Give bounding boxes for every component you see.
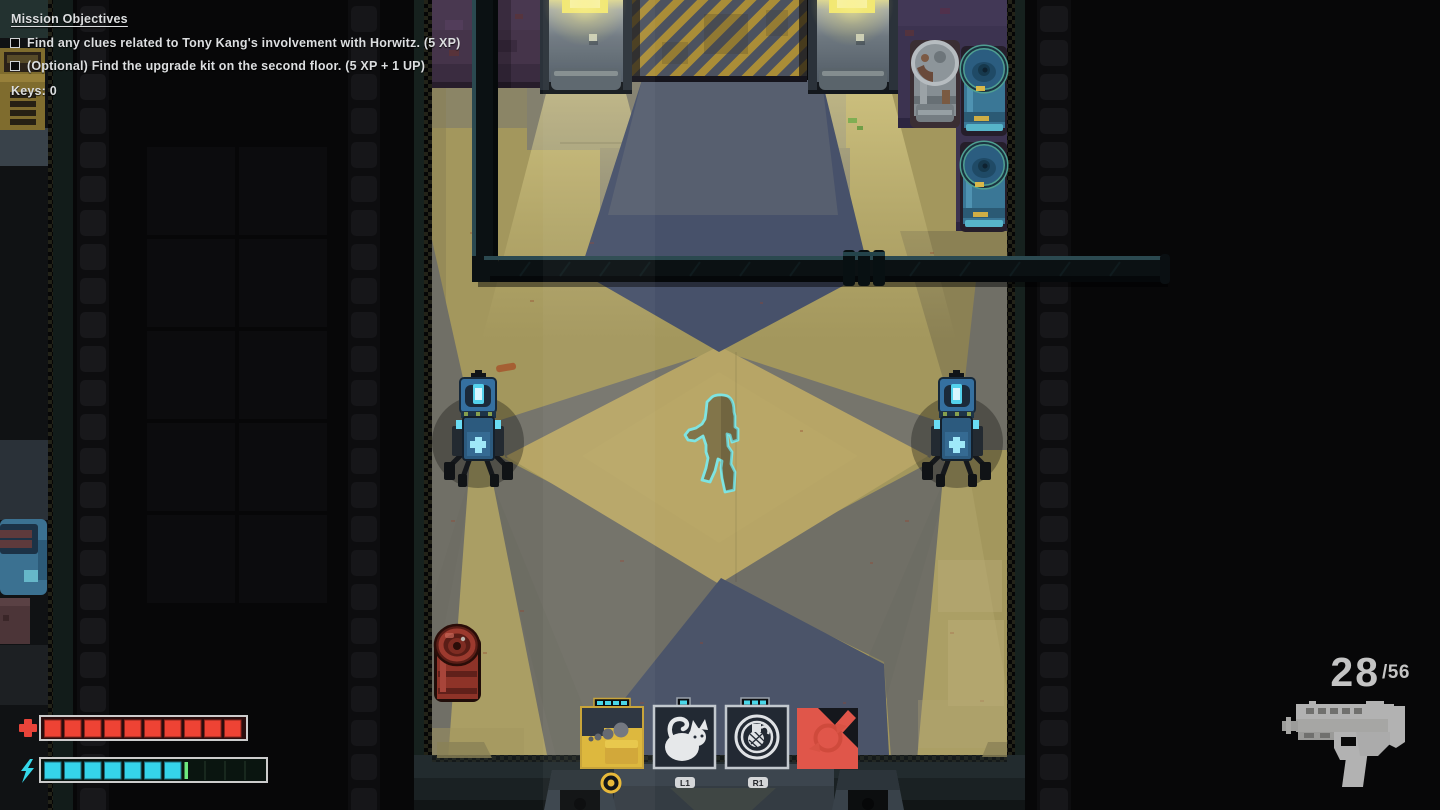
svg-text:28: 28 <box>1330 649 1380 695</box>
svg-text:/56: /56 <box>1382 662 1410 683</box>
svg-text:L1: L1 <box>680 778 690 788</box>
svg-text:R1: R1 <box>753 778 764 788</box>
